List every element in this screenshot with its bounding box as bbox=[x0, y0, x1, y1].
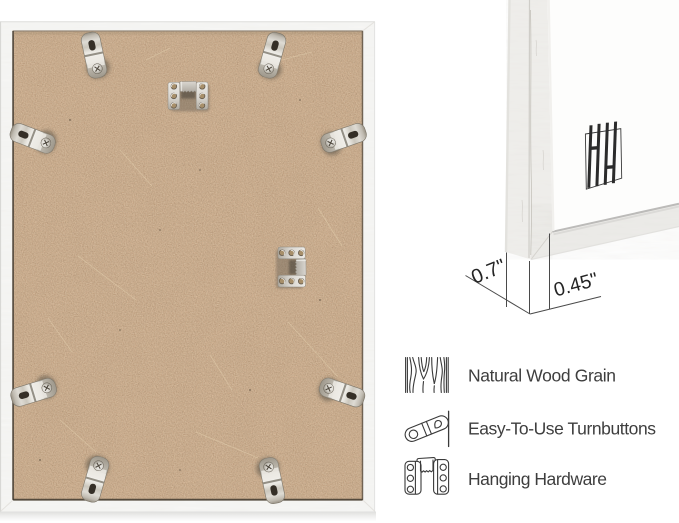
svg-text:Hanging Hardware: Hanging Hardware bbox=[468, 469, 607, 489]
svg-text:Easy-To-Use Turnbuttons: Easy-To-Use Turnbuttons bbox=[468, 419, 656, 439]
svg-text:Natural Wood Grain: Natural Wood Grain bbox=[468, 366, 616, 386]
